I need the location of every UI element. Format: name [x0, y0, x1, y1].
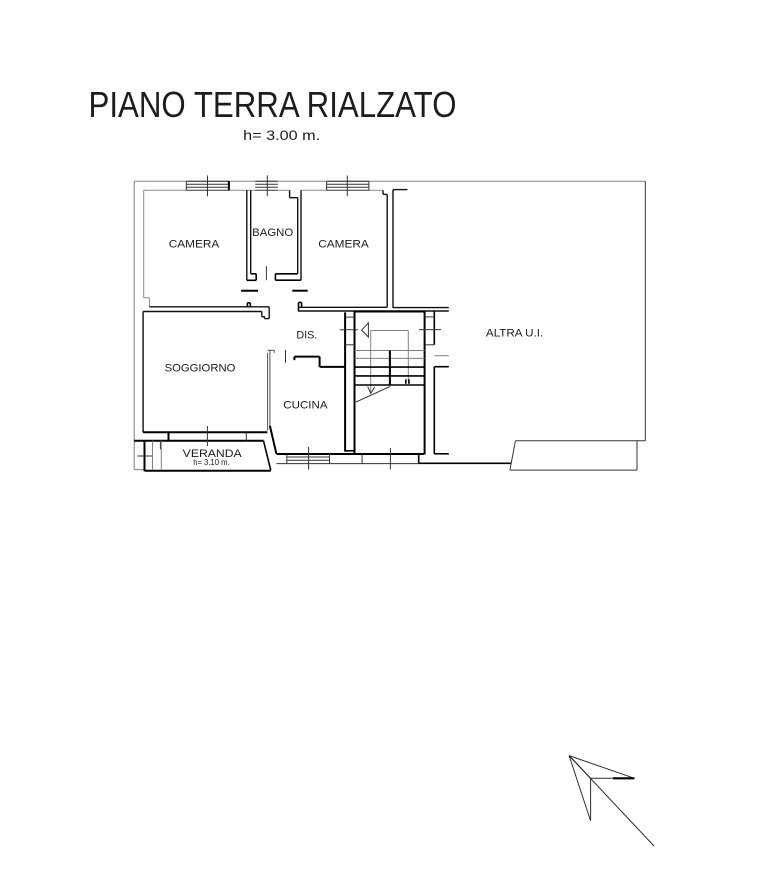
svg-text:h= 3.10 m.: h= 3.10 m.: [193, 458, 229, 467]
svg-text:PIANO TERRA RIALZATO: PIANO TERRA RIALZATO: [89, 84, 457, 125]
svg-text:DIS.: DIS.: [296, 329, 317, 341]
svg-text:ALTRA U.I.: ALTRA U.I.: [486, 327, 543, 339]
svg-text:h= 3.00 m.: h= 3.00 m.: [243, 127, 320, 143]
svg-text:SOGGIORNO: SOGGIORNO: [165, 363, 236, 375]
svg-text:CAMERA: CAMERA: [169, 239, 220, 251]
svg-text:BAGNO: BAGNO: [252, 227, 293, 239]
svg-text:CAMERA: CAMERA: [318, 239, 369, 251]
svg-text:CUCINA: CUCINA: [283, 400, 328, 412]
